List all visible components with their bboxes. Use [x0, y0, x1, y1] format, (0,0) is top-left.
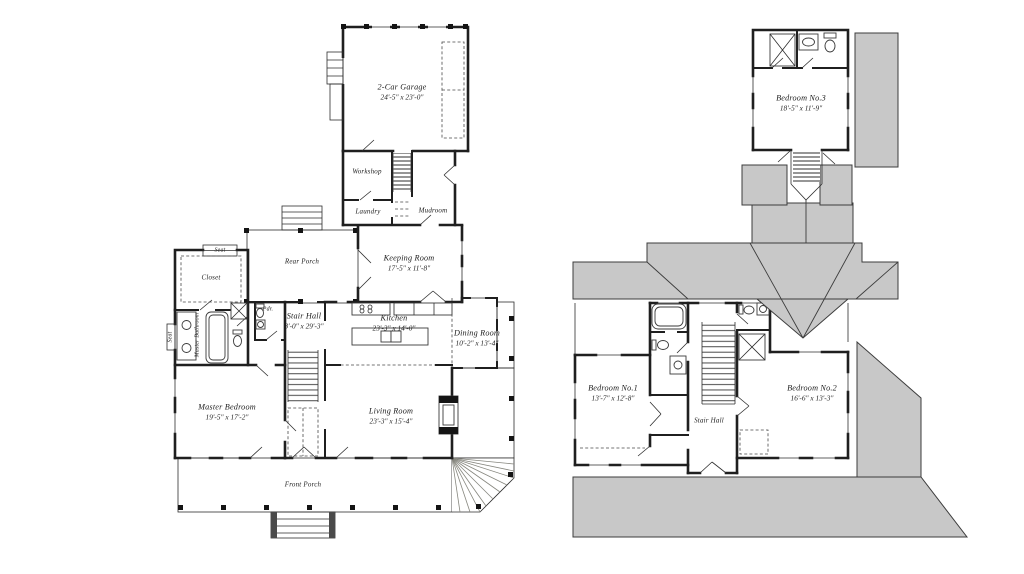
room-label-kitchen: Kitchen 23'-3" x 14'-0" — [373, 313, 416, 332]
room-label-master-bedroom: Master Bedroom 19'-5" x 17'-2" — [198, 402, 256, 421]
room-label-bedroom-1: Bedroom No.1 13'-7" x 12'-8" — [588, 383, 638, 402]
room-label-workshop: Workshop — [352, 168, 381, 177]
room-label-closet: Closet — [201, 274, 220, 283]
label-seat-closet: Seat — [215, 247, 226, 254]
room-label-bedroom-2: Bedroom No.2 16'-6" x 13'-3" — [787, 383, 837, 402]
room-label-dining-room: Dining Room 10'-2" x 13'-4" — [454, 328, 500, 347]
room-label-master-bathroom: Master Bathroom — [194, 313, 201, 358]
room-label-laundry: Laundry — [355, 208, 380, 217]
floor-plan-drawing — [0, 0, 1024, 574]
room-label-garage: 2-Car Garage 24'-5" x 23'-0" — [377, 82, 426, 101]
room-label-mudroom: Mudroom — [419, 207, 448, 216]
room-label-front-porch: Front Porch — [285, 481, 321, 490]
room-label-rear-porch: Rear Porch — [285, 258, 319, 267]
room-label-stair-hall-1: Stair Hall 8'-0" x 29'-3" — [284, 311, 323, 330]
room-label-stair-hall-2: Stair Hall — [694, 417, 724, 426]
room-label-bedroom-3: Bedroom No.3 18'-5" x 11'-9" — [776, 93, 826, 112]
room-label-keeping-room: Keeping Room 17'-5" x 11'-8" — [384, 253, 435, 272]
room-label-living-room: Living Room 23'-3" x 15'-4" — [369, 406, 413, 425]
label-seat-bath: Seat — [167, 332, 174, 343]
room-label-powder: Pdr. — [263, 306, 273, 313]
floor-plan-canvas: 2-Car Garage 24'-5" x 23'-0" Workshop La… — [0, 0, 1024, 574]
